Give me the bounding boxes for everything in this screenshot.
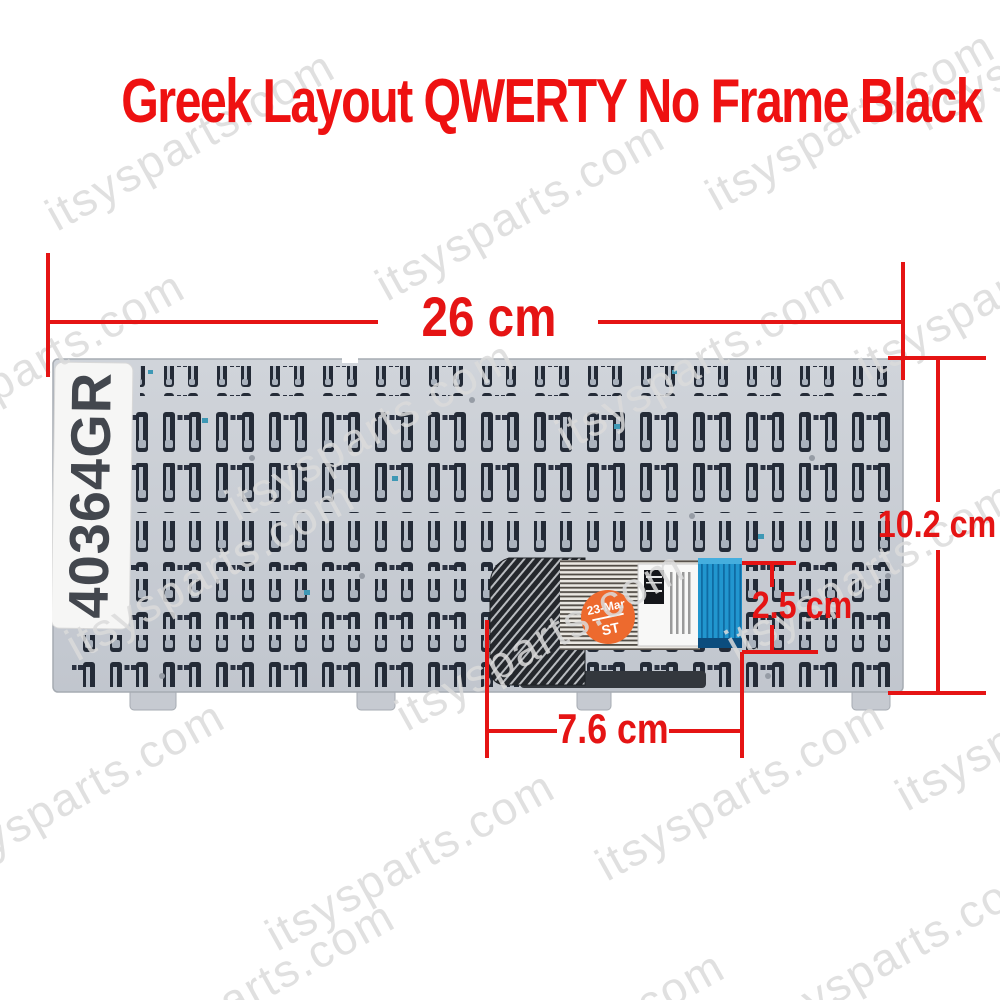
watermark-text: itsysparts.com xyxy=(426,938,734,1000)
offset-dim-tick-left xyxy=(485,620,489,758)
part-number-text: 40364GR xyxy=(56,371,122,619)
width-dim-tick-right xyxy=(901,262,905,380)
watermark-text: itsysparts.com xyxy=(96,888,404,1000)
part-number-label: 40364GR xyxy=(52,362,133,629)
width-dim-line-right xyxy=(598,320,905,324)
height-dim-label: 10.2 cm xyxy=(882,505,993,545)
offset-dim-line-right xyxy=(669,729,742,733)
product-image: itsysparts.com itsysparts.com itsysparts… xyxy=(0,0,1000,1000)
width-dim-tick-left xyxy=(46,253,50,377)
title-row: Greek Layout QWERTY No Frame Black xyxy=(0,66,1000,137)
offset-dim-label: 7.6 cm xyxy=(565,703,660,755)
width-dim-label: 26 cm xyxy=(395,288,584,344)
watermark-text: itsysparts.com xyxy=(366,108,674,311)
connector-dim-line-bottom xyxy=(770,625,774,650)
cable-barcode-label xyxy=(638,564,700,646)
watermark-text: itsysparts.com xyxy=(256,758,564,961)
connector-dim-label: 2.5 cm xyxy=(754,589,849,623)
offset-dim-tick-right xyxy=(740,652,744,758)
cable-connector xyxy=(698,558,742,648)
barcode xyxy=(644,570,664,604)
offset-dim-line-left xyxy=(489,729,557,733)
height-dim-line-bottom xyxy=(936,550,940,693)
connector-dim-tick-bottom xyxy=(742,650,818,654)
keyboard-backplate-photo: 40364GR xyxy=(52,358,904,720)
height-dim-line-top xyxy=(936,360,940,502)
height-dim-tick-bottom xyxy=(888,691,986,695)
watermark-text: itsysparts.com xyxy=(746,848,1000,1000)
product-title: Greek Layout QWERTY No Frame Black xyxy=(121,66,981,137)
connector-dim-tick-top xyxy=(742,561,796,565)
width-dim-line-left xyxy=(48,320,378,324)
